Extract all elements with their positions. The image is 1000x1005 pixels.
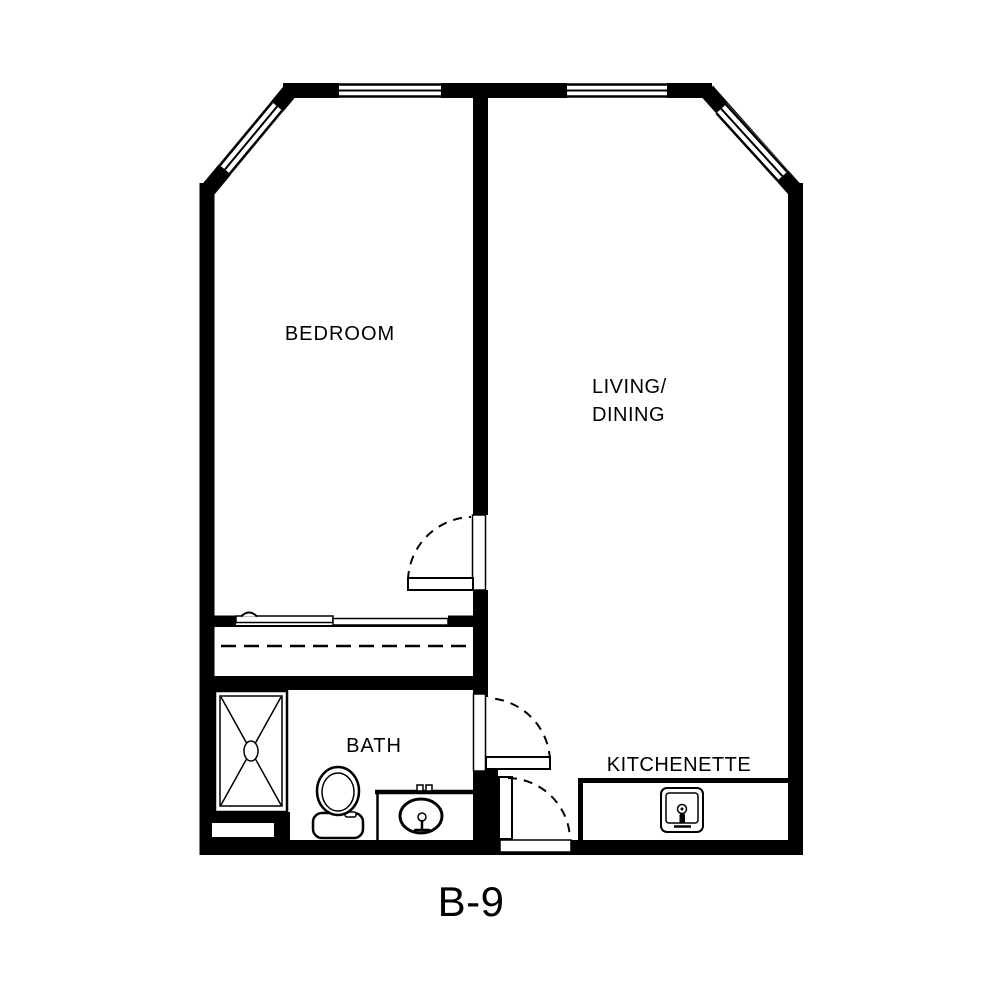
kitchen-faucet-stem [680, 814, 686, 824]
shower [215, 691, 287, 812]
kitchen-sink [661, 788, 703, 832]
closet-stub-left [212, 616, 236, 626]
floor-plan: BEDROOM LIVING/ DINING BATH KITCHENETTE … [0, 0, 1000, 1000]
entry-door-threshold [500, 840, 571, 852]
entry-door-leaf [499, 777, 512, 839]
kitchenette-label: KITCHENETTE [607, 754, 751, 776]
top-wall-window-right [567, 83, 667, 98]
closet-stub-right [448, 616, 481, 626]
closet-door-handle [241, 613, 257, 617]
vanity-knob-2 [426, 785, 432, 791]
bath-door-leaf [486, 757, 550, 769]
top-wall-window-left [339, 83, 441, 98]
bath-door [474, 694, 551, 771]
bath-door-swing-arc [488, 698, 550, 760]
bedroom-door-leaf [408, 578, 473, 590]
closet [212, 613, 481, 647]
outer-walls [200, 91, 804, 856]
living-label-line1: LIVING/ [592, 376, 667, 398]
bedroom-door-swing-arc [408, 517, 471, 580]
wall-entry-jamb [488, 770, 498, 848]
bedroom-door-frame [473, 515, 486, 590]
corner-window-left [220, 102, 282, 173]
bedroom-label: BEDROOM [285, 323, 395, 345]
corner-window-right [716, 104, 787, 180]
toilet [313, 767, 363, 838]
living-label-line2: DINING [592, 404, 665, 426]
entry-door-swing-arc [508, 778, 570, 838]
vent-notch [212, 823, 274, 837]
floor-plan-svg: BEDROOM LIVING/ DINING BATH KITCHENETTE … [0, 0, 1000, 1000]
vanity-sink [375, 785, 473, 840]
entry-door [499, 777, 571, 852]
bath-fixtures [200, 691, 473, 850]
plan-code-label: B-9 [438, 878, 505, 925]
vanity-knob-1 [417, 785, 423, 791]
closet-sliding-door-2 [333, 619, 448, 626]
bath-label: BATH [346, 735, 402, 757]
closet-sliding-door-1 [236, 616, 333, 623]
bedroom-door [408, 515, 486, 590]
toilet-bowl-inner [322, 773, 354, 811]
shower-drain [244, 741, 258, 761]
bath-door-frame [474, 694, 486, 771]
kitchenette-fixtures [578, 778, 795, 840]
